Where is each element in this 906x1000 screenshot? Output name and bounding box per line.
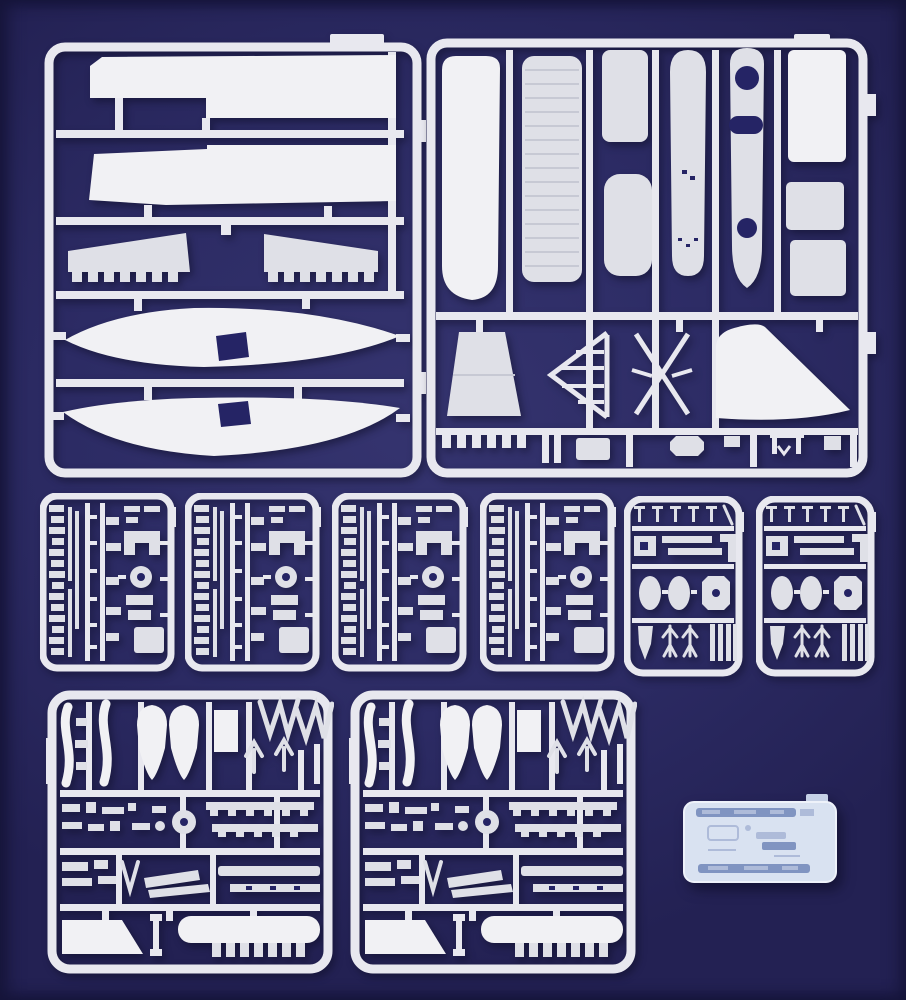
cockpit-opening bbox=[216, 332, 249, 361]
tailplane-part bbox=[68, 233, 190, 282]
sprue-clear-canopy bbox=[678, 794, 848, 890]
strut-ladder-part bbox=[551, 333, 607, 417]
sprue-detail-2 bbox=[185, 493, 321, 675]
tail-fin-part bbox=[447, 332, 521, 416]
sprue-detail-4 bbox=[480, 493, 616, 675]
panel-part bbox=[604, 174, 652, 276]
sprue-small-detail-2 bbox=[756, 496, 876, 678]
fuselage-half-part bbox=[65, 308, 400, 367]
sprue-airframe-a bbox=[44, 34, 426, 486]
upper-wing-half-part bbox=[89, 145, 396, 205]
flap-panel-part bbox=[522, 56, 582, 282]
cross-strut-part bbox=[632, 334, 692, 414]
small-parts-strip bbox=[442, 432, 841, 463]
sprue-airframe-b bbox=[426, 34, 882, 486]
sprue-equipment-2 bbox=[349, 690, 637, 978]
tailplane-part bbox=[264, 234, 378, 282]
sprue-small-detail-1 bbox=[624, 496, 744, 678]
fuselage-spine-part bbox=[670, 50, 706, 276]
sprue-equipment-1 bbox=[46, 690, 334, 978]
cockpit-opening bbox=[218, 401, 251, 427]
sprue-detail-1 bbox=[40, 493, 176, 675]
bulkhead-panel-part bbox=[788, 50, 846, 162]
bulkhead-panel-part bbox=[790, 240, 846, 296]
bulkhead-panel-part bbox=[786, 182, 844, 230]
fuselage-half-part bbox=[63, 397, 400, 456]
upper-wing-half-part bbox=[90, 55, 396, 118]
rudder-fin-part bbox=[716, 324, 850, 419]
photo-background bbox=[0, 0, 906, 1000]
panel-part bbox=[602, 50, 648, 142]
lower-wing-panel-part bbox=[442, 56, 500, 300]
sprue-detail-3 bbox=[332, 493, 468, 675]
cockpit-floor-part bbox=[729, 48, 764, 288]
